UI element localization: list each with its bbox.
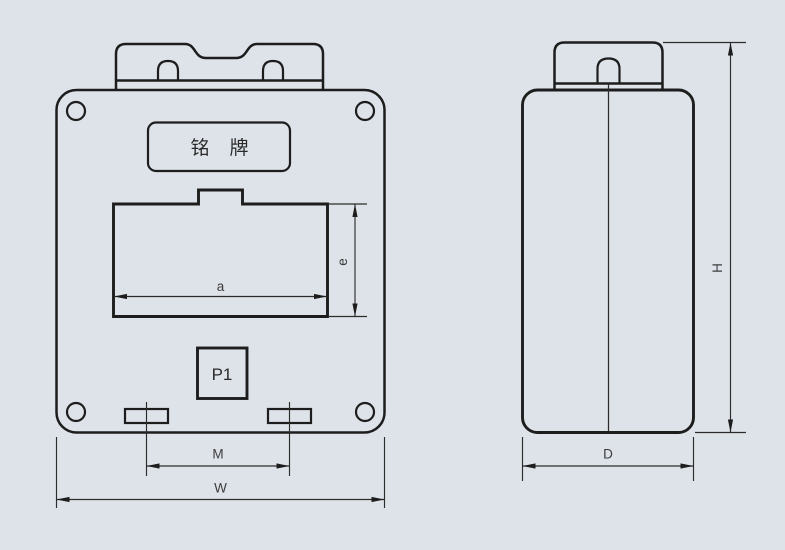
nameplate-label: 铭 牌 (190, 137, 255, 159)
dim-d-label: D (603, 447, 613, 462)
dim-e-arrow-top (352, 204, 357, 217)
dim-a-arrow-left (114, 294, 127, 299)
corner-hole-bottom-right (356, 403, 374, 421)
bracket-arch-right (263, 61, 283, 80)
corner-hole-bottom-left (67, 403, 85, 421)
dim-m-label: M (212, 447, 223, 462)
dim-h-label: H (710, 263, 725, 273)
dim-a-arrow-right (314, 294, 327, 299)
dim-w-arrow-left (57, 497, 70, 502)
dim-d-arrow-right (681, 463, 694, 468)
technical-drawing: 铭 牌 a e P1 M W (0, 0, 785, 550)
side-cap-arch (598, 59, 620, 84)
dim-d-arrow-left (523, 463, 536, 468)
side-view: H D (523, 43, 747, 482)
front-view: 铭 牌 a e P1 M W (57, 44, 385, 508)
dim-m-arrow-left (147, 463, 160, 468)
dim-a-label: a (217, 279, 225, 294)
dim-e-label: e (335, 258, 350, 266)
front-bracket-outline (116, 44, 323, 90)
dim-h-arrow-top (728, 43, 733, 56)
dim-w-arrow-right (372, 497, 385, 502)
corner-hole-top-right (356, 102, 374, 120)
corner-hole-top-left (67, 102, 85, 120)
dim-h-arrow-bottom (728, 420, 733, 433)
dim-m-arrow-right (277, 463, 290, 468)
drawing-canvas: 铭 牌 a e P1 M W (0, 0, 785, 550)
terminal-p1-label: P1 (212, 365, 233, 384)
window-opening-outline (114, 190, 328, 317)
dim-w-label: W (214, 481, 227, 496)
bracket-arch-left (158, 61, 178, 80)
dim-e-arrow-bottom (352, 304, 357, 317)
